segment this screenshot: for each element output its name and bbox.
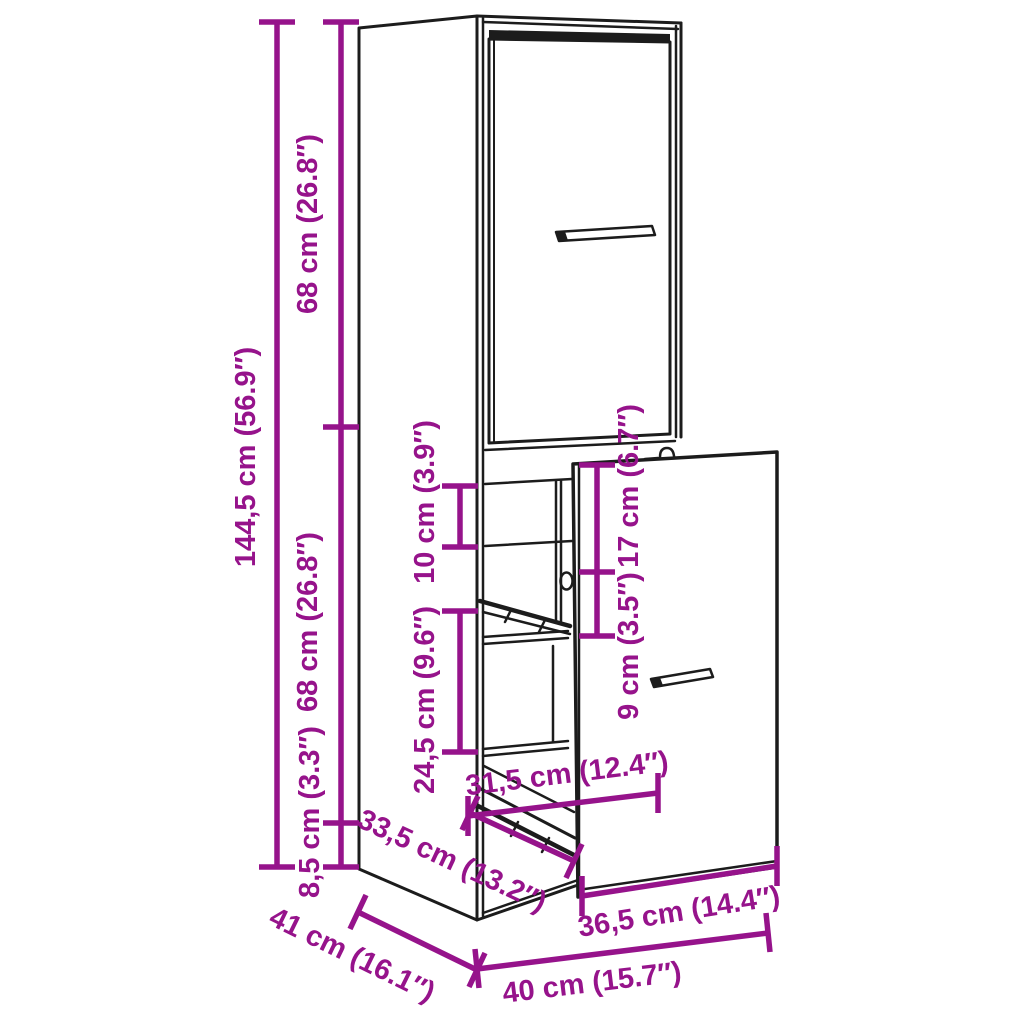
dim-total-height-label: 144,5 cm (56.9″) xyxy=(230,347,262,567)
dim-upper-section-label: 68 cm (26.8″) xyxy=(292,134,324,314)
dim-middle-opening-label: 24,5 cm (9.6″) xyxy=(409,606,441,794)
drawer-side-hole xyxy=(561,573,573,590)
diagram-canvas: 144,5 cm (56.9″) 68 cm (26.8″) 68 cm (26… xyxy=(0,0,1024,1024)
dim-total-height-line xyxy=(259,22,295,867)
product-dimension-diagram: 144,5 cm (56.9″) 68 cm (26.8″) 68 cm (26… xyxy=(0,0,1024,1024)
dim-drawer-front-upper-label: 17 cm (6.7″) xyxy=(613,404,645,568)
dim-base-height-label: 8,5 cm (3.3″) xyxy=(294,726,326,898)
dim-drawer-front-lower-label: 9 cm (3.5″) xyxy=(613,572,645,720)
dim-middle-section-label: 68 cm (26.8″) xyxy=(292,532,324,712)
dim-left-sections-line xyxy=(323,22,359,867)
dim-top-gap-label: 10 cm (3.9″) xyxy=(409,420,441,584)
dim-depth-label: 41 cm (16.1″) xyxy=(264,901,440,1009)
